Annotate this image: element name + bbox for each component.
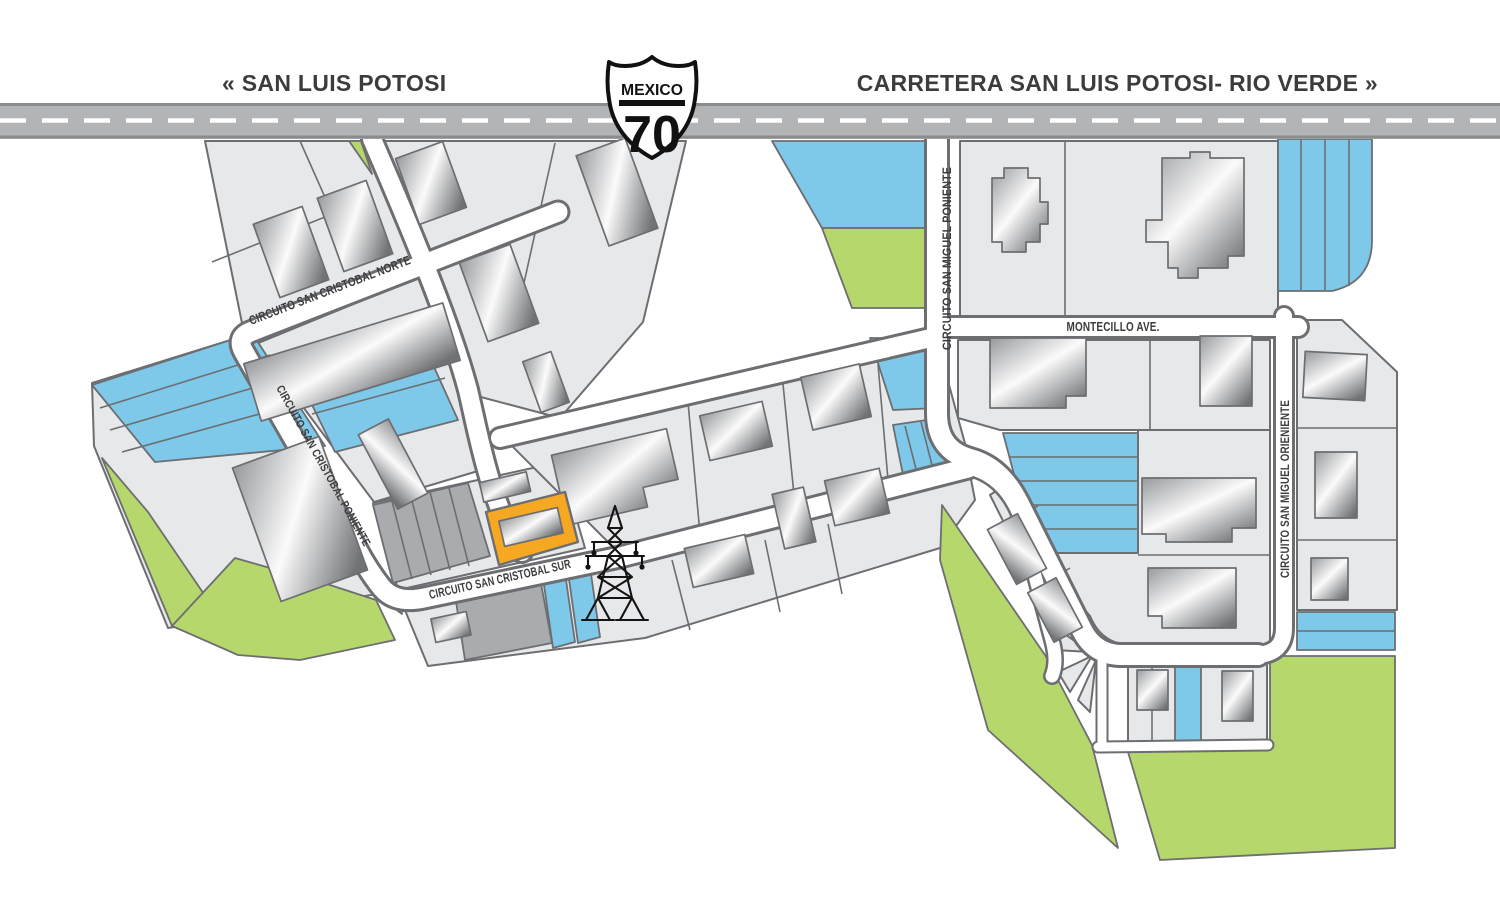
label-montecillo-ave: MONTECILLO AVE.: [1067, 319, 1160, 334]
label-circuito-san-miguel-oriente: CIRCUITO SAN MIGUEL ORIENIENTE: [1280, 400, 1292, 578]
destination-left: « SAN LUIS POTOSI: [222, 70, 447, 96]
map-page: CIRCUITO SAN CRISTOBAL NORTE CIRCUITO SA…: [0, 0, 1500, 906]
location-map: CIRCUITO SAN CRISTOBAL NORTE CIRCUITO SA…: [0, 0, 1500, 906]
destination-right: CARRETERA SAN LUIS POTOSI- RIO VERDE »: [857, 70, 1378, 96]
highway-destinations: « SAN LUIS POTOSI CARRETERA SAN LUIS POT…: [222, 70, 1378, 96]
shield-route-number: 70: [623, 106, 681, 164]
highway-band: [0, 103, 1500, 139]
shield-country-label: MEXICO: [621, 82, 683, 99]
label-circuito-san-miguel-poniente: CIRCUITO SAN MIGUEL PONIENTE: [940, 167, 954, 350]
